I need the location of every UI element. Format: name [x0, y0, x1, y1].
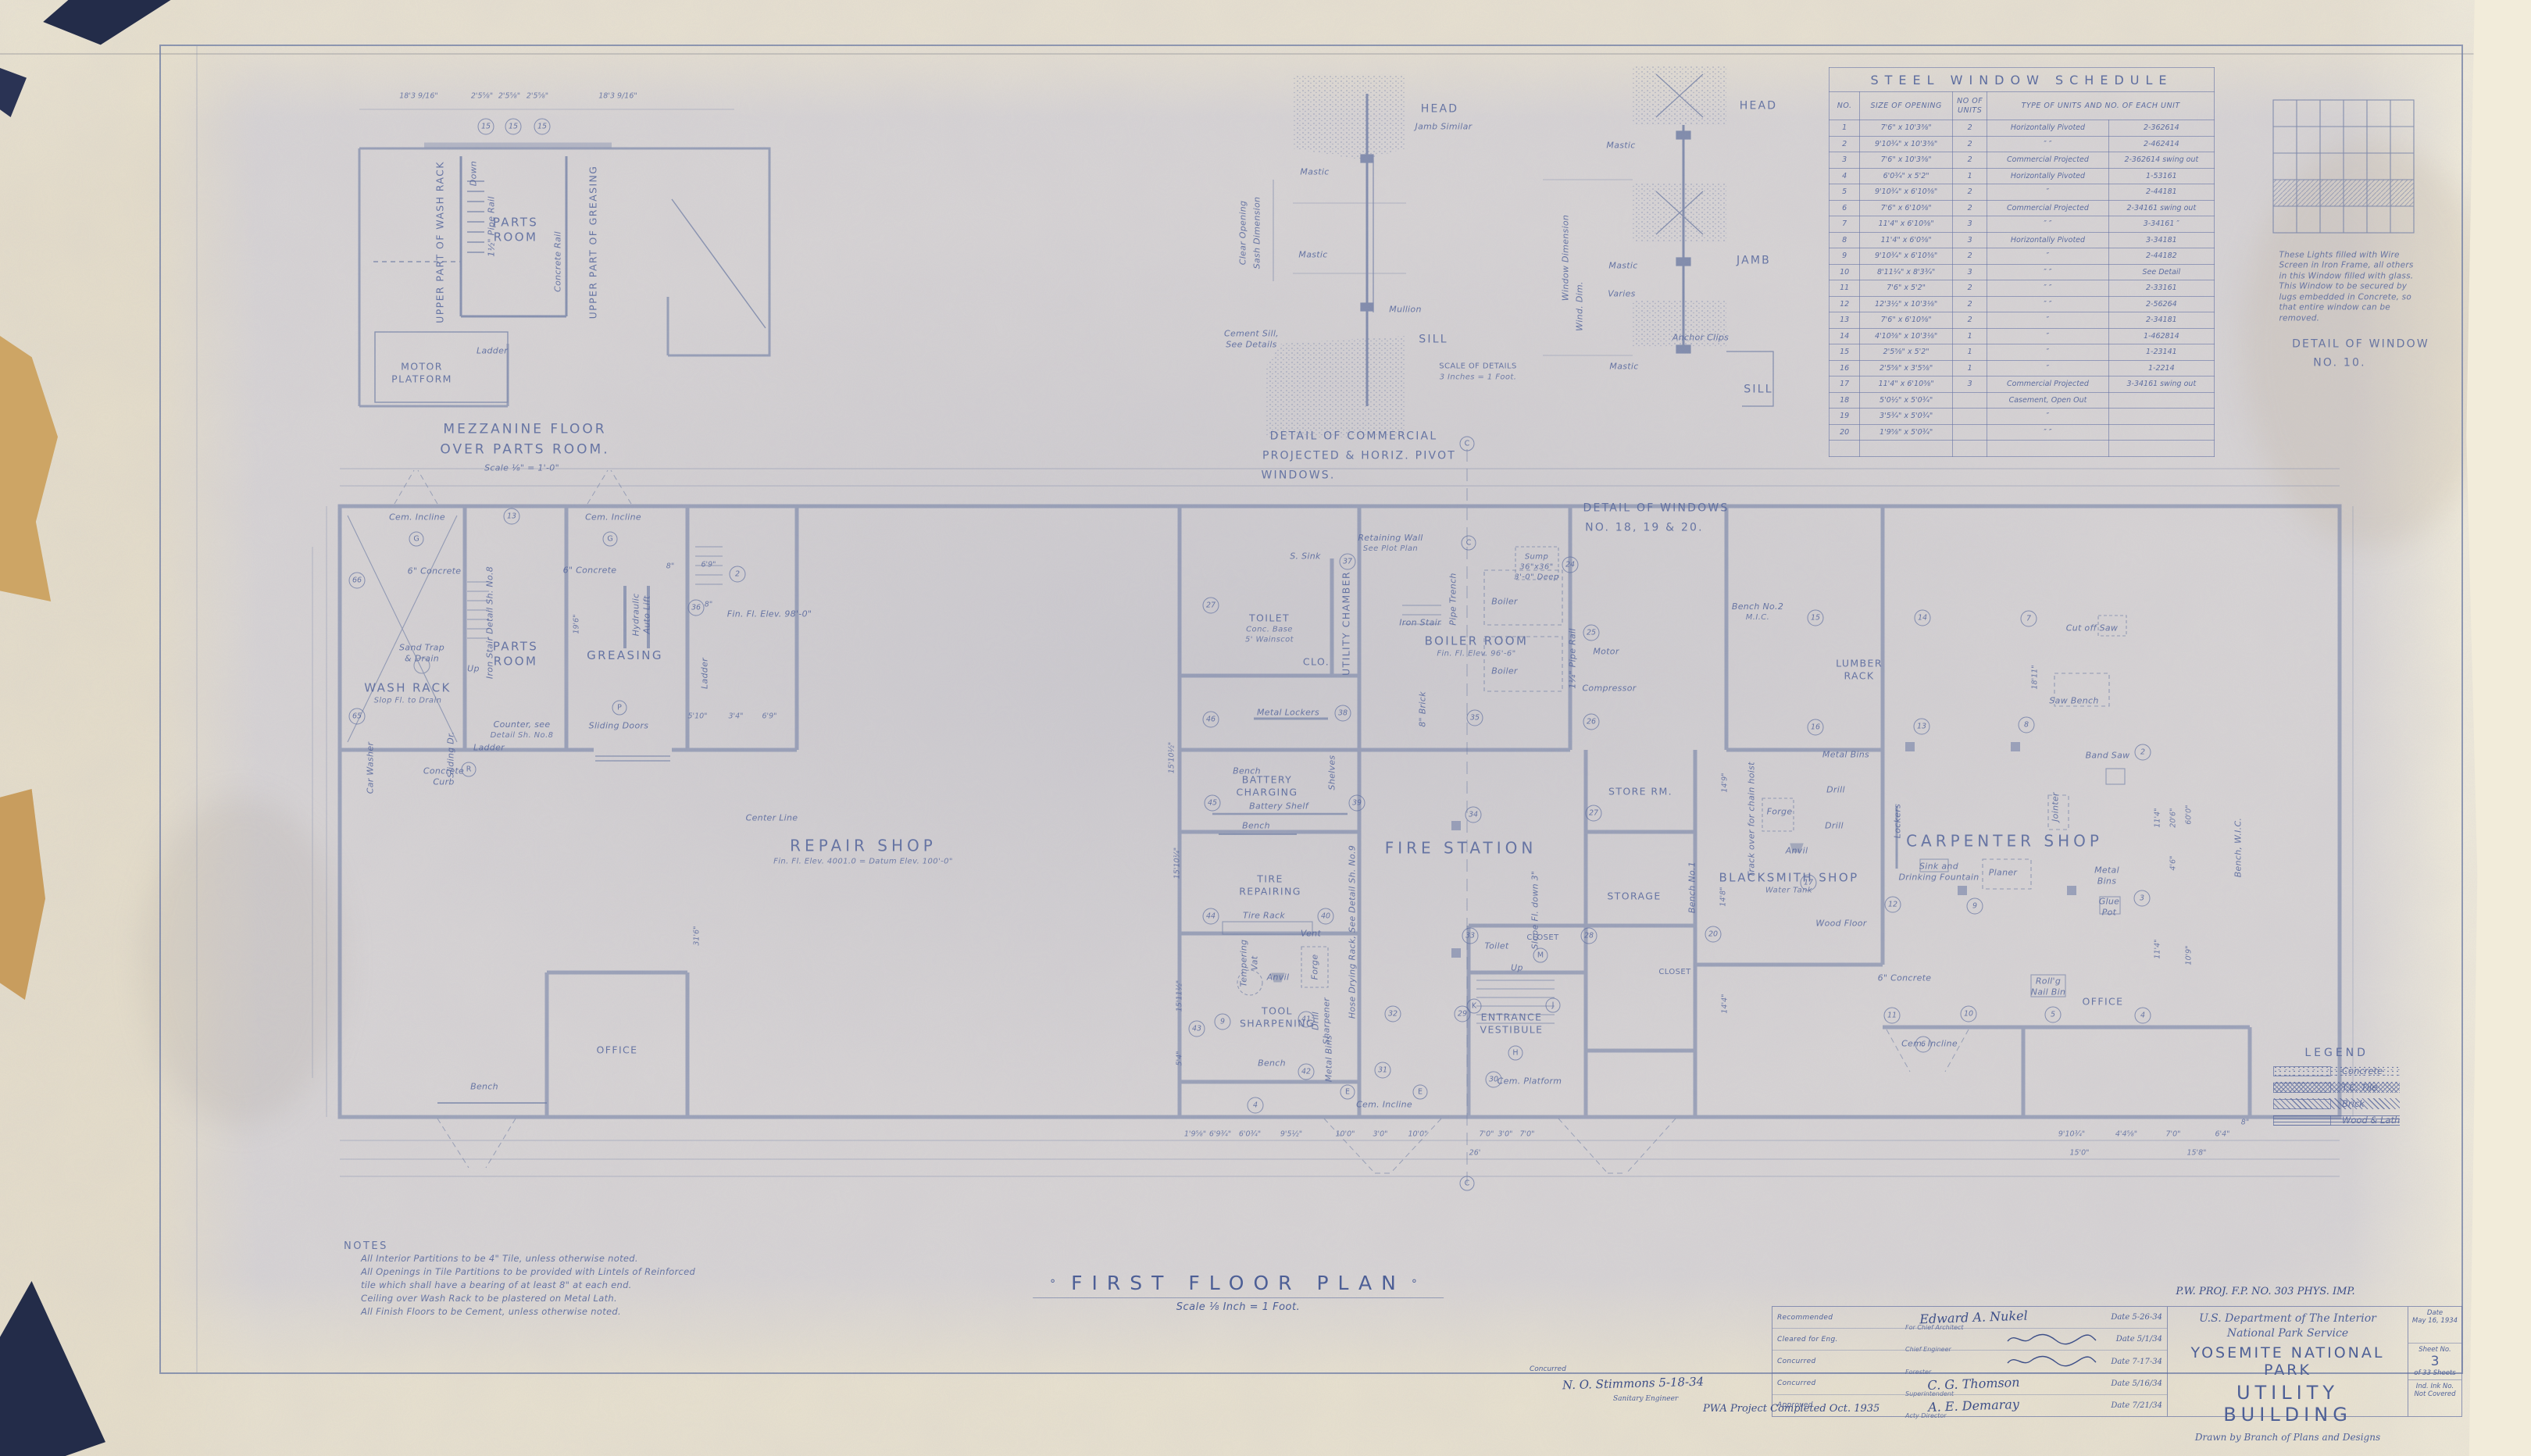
plan-label: Bench	[1233, 765, 1261, 777]
legend-item: Wood & Lath	[2273, 1115, 2400, 1126]
plan-label: Up	[467, 663, 480, 675]
window-number-marker: C	[1462, 536, 1476, 551]
dimension-label: 3'4"	[728, 712, 743, 721]
legend-label: Concrete	[2342, 1065, 2383, 1076]
schedule-cell-unit	[2108, 441, 2214, 457]
schedule-cell-type: Commercial Projected	[1987, 200, 2108, 216]
plan-label: Hydraulic Auto Lift	[630, 594, 653, 637]
sheet-label: Sheet No.	[2408, 1346, 2461, 1354]
plan-title-block: FIRST FLOOR PLAN Scale ⅛ Inch = 1 Foot.	[1033, 1272, 1444, 1313]
plan-label: Band Saw	[2086, 750, 2130, 762]
dimension-label: 14'4"	[1721, 994, 1730, 1013]
window-number-marker: G	[409, 532, 424, 547]
plan-label: Compressor	[1582, 683, 1636, 694]
window-number-marker: 9	[1967, 898, 1983, 915]
schedule-cell-size: 1'9⅝" x 5'0¾"	[1860, 424, 1953, 441]
schedule-cell-no: 7	[1830, 216, 1860, 233]
window-number-marker: 34	[1465, 807, 1482, 823]
plan-label: Vent	[1301, 928, 1321, 940]
plan-label: TOILETConc. Base 5' Wainscot	[1245, 612, 1294, 646]
plan-label: Cem. Incline	[1356, 1099, 1412, 1111]
schedule-row: 17 11'4" x 6'10⅜" 3 Commercial Projected…	[1830, 376, 2215, 393]
schedule-cell-no: 13	[1830, 312, 1860, 329]
schedule-cell-no: 11	[1830, 280, 1860, 297]
plan-label: DETAIL OF COMMERCIAL	[1270, 430, 1438, 445]
legend-item: Concrete	[2273, 1065, 2400, 1076]
schedule-cell-units: 2	[1953, 312, 1987, 329]
schedule-cell-unit: 1-53161	[2108, 168, 2214, 184]
schedule-cell-units: 2	[1953, 200, 1987, 216]
dimension-label: 5'10"	[687, 712, 707, 721]
schedule-col-units: NO OF UNITS	[1953, 92, 1987, 120]
plan-label: Drill	[1825, 820, 1844, 832]
schedule-cell-no: 14	[1830, 328, 1860, 344]
schedule-cell-no: 12	[1830, 296, 1860, 312]
schedule-cell-size: 7'6" x 10'3⅜"	[1860, 152, 1953, 169]
legend-swatch	[2273, 1099, 2331, 1109]
schedule-cell-type: ″	[1987, 328, 2108, 344]
dimension-label: 10'0"	[1408, 1130, 1427, 1139]
plan-label: UPPER PART OF GREASING	[587, 166, 601, 319]
schedule-cell-size: 9'10¾" x 6'10⅜"	[1860, 248, 1953, 265]
schedule-cell-size: 2'5⅝" x 5'2"	[1860, 344, 1953, 361]
schedule-cell-no: 18	[1830, 392, 1860, 409]
dimension-label: 6'0¾"	[1239, 1130, 1261, 1139]
schedule-cell-units: 2	[1953, 296, 1987, 312]
schedule-cell-type: Horizontally Pivoted	[1987, 120, 2108, 137]
notes-title: NOTES	[344, 1240, 695, 1252]
window-number-marker: 14	[1915, 610, 1931, 626]
dimension-label: 15'8"	[2187, 1149, 2206, 1158]
schedule-cell-units: 3	[1953, 376, 1987, 393]
window-number-marker: C	[1460, 437, 1475, 451]
dimension-label: 60'0"	[2185, 805, 2194, 824]
schedule-row: 6 7'6" x 6'10⅜" 2 Commercial Projected 2…	[1830, 200, 2215, 216]
schedule-cell-type: ″ ″	[1987, 216, 2108, 233]
plan-label: Glue Pot	[2099, 896, 2120, 919]
window-number-marker: 36	[688, 600, 705, 616]
schedule-cell-size: 3'5¾" x 5'0¾"	[1860, 409, 1953, 425]
schedule-cell-no: 20	[1830, 424, 1860, 441]
plan-label: BLACKSMITH SHOPWater Tank	[1719, 871, 1858, 897]
plan-label: Bench	[1242, 820, 1270, 832]
schedule-cell-unit: 2-34161 swing out	[2108, 200, 2214, 216]
plan-label: CLOSET	[1658, 968, 1690, 979]
schedule-cell-no: 5	[1830, 184, 1860, 201]
schedule-row: 15 2'5⅝" x 5'2" 1 ″ 1-23141	[1830, 344, 2215, 361]
schedule-cell-type	[1987, 441, 2108, 457]
dimension-label: 3'0"	[1373, 1130, 1387, 1139]
plan-label: Anvil	[1786, 845, 1808, 857]
plan-label: NO. 10.	[2313, 357, 2366, 372]
schedule-cell-unit: 1-2214	[2108, 360, 2214, 376]
window-number-marker: E	[1413, 1085, 1428, 1100]
dimension-label: 31'6"	[693, 926, 701, 945]
schedule-cell-no: 1	[1830, 120, 1860, 137]
signature-date: Date 5-26-34	[2098, 1313, 2162, 1322]
schedule-row: 1 7'6" x 10'3⅜" 2 Horizontally Pivoted 2…	[1830, 120, 2215, 137]
dimension-label: 4'6"	[2169, 855, 2178, 870]
plan-label: Up	[1511, 962, 1523, 974]
schedule-cell-unit	[2108, 409, 2214, 425]
schedule-cell-size: 5'0½" x 5'0¾"	[1860, 392, 1953, 409]
date-label: Date	[2408, 1309, 2461, 1317]
schedule-cell-units: 1	[1953, 168, 1987, 184]
legend-item: T.C. Tile	[2273, 1082, 2400, 1093]
plan-label: 1½" Pipe Rail	[486, 196, 498, 257]
schedule-row: 18 5'0½" x 5'0¾" Casement, Open Out	[1830, 392, 2215, 409]
plan-label: DETAIL OF WINDOW	[2292, 338, 2429, 353]
schedule-cell-type: ″	[1987, 184, 2108, 201]
schedule-cell-unit: 2-362614	[2108, 120, 2214, 137]
plan-label: LUMBER RACK	[1836, 658, 1883, 683]
plan-label: 6" Concrete	[1878, 972, 1932, 984]
signature-date: Date 5/1/34	[2098, 1335, 2162, 1344]
window-number-marker: 2	[730, 566, 746, 583]
plan-label: Mastic	[1608, 260, 1637, 272]
signature-date: Date 7-17-34	[2098, 1358, 2162, 1366]
window-number-marker: 8	[2019, 717, 2035, 733]
legend-items: Concrete T.C. Tile Brick Wood & Lath	[2273, 1065, 2400, 1126]
building-name: UTILITY BUILDING	[2168, 1382, 2408, 1426]
plan-label: FIRE STATION	[1385, 839, 1537, 860]
dimension-label: 7'0"	[1519, 1130, 1534, 1139]
window-number-marker: 15	[478, 119, 494, 135]
window-number-marker: 4	[1248, 1097, 1264, 1114]
date-value: May 16, 1934	[2408, 1317, 2461, 1325]
plan-label: MOTOR PLATFORM	[391, 361, 452, 387]
window-number-marker: 39	[1349, 795, 1365, 812]
plan-label: Bench	[470, 1081, 498, 1093]
dimension-label: 6'9"	[701, 561, 716, 569]
window-number-marker: 66	[349, 573, 366, 589]
steel-window-schedule: STEEL WINDOW SCHEDULE NO. SIZE OF OPENIN…	[1829, 67, 2215, 457]
plan-label: Motor	[1593, 646, 1619, 658]
window-number-marker: 46	[1203, 712, 1219, 728]
schedule-row: 13 7'6" x 6'10⅜" 2 ″ 2-34181	[1830, 312, 2215, 329]
plan-label: HEAD	[1740, 100, 1778, 115]
schedule-cell-no: 8	[1830, 232, 1860, 248]
dimension-label: 18'11"	[2031, 665, 2040, 689]
plan-label: Wood Floor	[1815, 918, 1866, 930]
schedule-cell-type: ″ ″	[1987, 280, 2108, 297]
schedule-row: 10 8'11¼" x 8'3¾" 3 ″ ″ See Detail	[1830, 264, 2215, 280]
plan-label: 6" Concrete	[408, 566, 462, 577]
window-number-marker: 41	[1298, 1012, 1315, 1028]
window-number-marker: 7	[2021, 611, 2037, 627]
window-number-marker: 13	[1914, 719, 1930, 735]
plan-label: Jointer	[2050, 792, 2062, 822]
side-signature-role: Sanitary Engineer	[1613, 1395, 1678, 1403]
schedule-cell-unit: 2-34181	[2108, 312, 2214, 329]
schedule-cell-no: 19	[1830, 409, 1860, 425]
plan-label: Cem. Incline	[389, 512, 445, 523]
plan-label: SCALE OF DETAILS3 Inches = 1 Foot.	[1439, 362, 1517, 384]
plan-label: Cement Sill, See Details	[1224, 328, 1279, 351]
dimension-label: 15'0"	[2069, 1149, 2089, 1158]
window-number-marker: 40	[1318, 908, 1334, 925]
schedule-cell-type: Casement, Open Out	[1987, 392, 2108, 409]
plan-label: Metal Lockers	[1257, 707, 1319, 719]
plan-label: Mullion	[1389, 304, 1421, 316]
schedule-cell-type: ″	[1987, 312, 2108, 329]
schedule-cell-size: 2'5⅝" x 3'5⅝"	[1860, 360, 1953, 376]
window-number-marker: G	[603, 532, 618, 547]
plan-label: MEZZANINE FLOOR	[443, 422, 606, 440]
schedule-cell-no: 16	[1830, 360, 1860, 376]
window-number-marker: 15	[1808, 610, 1824, 626]
schedule-cell-units	[1953, 441, 1987, 457]
plan-label: Toilet	[1484, 940, 1508, 952]
schedule-rows: 1 7'6" x 10'3⅜" 2 Horizontally Pivoted 2…	[1830, 120, 2215, 457]
schedule-cell-unit: 1-462814	[2108, 328, 2214, 344]
plan-label: Bench, W.I.C.	[2233, 818, 2244, 878]
signature-date: Date 5/16/34	[2098, 1379, 2162, 1388]
plan-label: PARTS ROOM	[493, 639, 538, 669]
schedule-cell-units	[1953, 409, 1987, 425]
dimension-label: 26'	[1469, 1149, 1481, 1158]
schedule-cell-type: ″ ″	[1987, 264, 2108, 280]
window-number-marker: 44	[1203, 908, 1219, 925]
schedule-col-size: SIZE OF OPENING	[1860, 92, 1953, 120]
signature-row: Concurred C. G. Thomson Superintendent D…	[1772, 1373, 2167, 1395]
schedule-row: 7 11'4" x 6'10⅜" 3 ″ ″ 3-34161 ″	[1830, 216, 2215, 233]
dimension-label: 7'0"	[1479, 1130, 1494, 1139]
plan-label: Sliding Doors	[589, 720, 649, 732]
schedule-cell-size: 4'10⅜" x 10'3⅛"	[1860, 328, 1953, 344]
plan-label: 1¼" Pipe Rail	[1567, 628, 1579, 689]
plan-label: PARTS ROOM	[493, 215, 538, 245]
dimension-label: 8"	[705, 601, 712, 609]
schedule-cell-size: 11'4" x 6'10⅜"	[1860, 216, 1953, 233]
legend-label: Brick	[2342, 1098, 2365, 1109]
plan-label: STORE RM.	[1608, 786, 1672, 799]
window-number-marker: M	[1533, 948, 1548, 963]
plan-label: OFFICE	[597, 1044, 638, 1058]
schedule-cell-type: Commercial Projected	[1987, 152, 2108, 169]
plan-label: Concrete Curb	[423, 765, 464, 788]
dimension-label: 15'10½"	[1168, 742, 1176, 773]
window-number-marker: 15	[505, 119, 522, 135]
schedule-row: 2 9'10¾" x 10'3⅜" 2 ″ ″ 2-462414	[1830, 136, 2215, 152]
notes-lines: All Interior Partitions to be 4" Tile, u…	[344, 1252, 695, 1319]
legend-swatch	[2273, 1066, 2331, 1076]
window-number-marker: 43	[1189, 1021, 1205, 1037]
window-number-marker: 2	[2135, 744, 2151, 761]
window-number-marker: 15	[534, 119, 551, 135]
schedule-cell-no: 6	[1830, 200, 1860, 216]
dimension-label: 9'5½"	[1280, 1130, 1302, 1139]
window-number-marker: 45	[1205, 795, 1221, 812]
plan-label: 8" Brick	[1417, 691, 1429, 727]
window-number-marker: K	[1467, 999, 1482, 1014]
window-number-marker: 35	[1467, 710, 1483, 726]
plan-label: Mastic	[1300, 166, 1329, 178]
schedule-cell-size	[1860, 441, 1953, 457]
plan-label: Sink and Drinking Fountain	[1898, 861, 1979, 883]
plan-label: Planer	[1989, 867, 2018, 879]
plan-label: Boiler	[1491, 596, 1517, 608]
plan-label: Tire Rack	[1243, 910, 1285, 922]
window-number-marker: 28	[1581, 928, 1597, 944]
schedule-cell-type: Commercial Projected	[1987, 376, 2108, 393]
plan-label: Varies	[1608, 288, 1635, 300]
dimension-label: 11'4"	[2154, 808, 2162, 827]
schedule-cell-size: 12'3½" x 10'3⅛"	[1860, 296, 1953, 312]
title-block: Recommended Edward A. Nukel For Chief Ar…	[1772, 1306, 2462, 1417]
window-number-marker: 31	[1375, 1062, 1391, 1079]
agency-line-2: National Park Service	[2168, 1326, 2408, 1341]
dimension-label: 18'3 9/16"	[598, 92, 637, 101]
signature: A. E. Demaray	[1849, 1394, 2098, 1417]
schedule-cell-type: ″	[1987, 344, 2108, 361]
window-number-marker: E	[1340, 1085, 1355, 1100]
plan-label: OFFICE	[2083, 996, 2124, 1009]
plan-label: SILL	[1419, 334, 1448, 348]
plan-label: These Lights filled with Wire Screen in …	[2279, 250, 2463, 324]
park-name: YOSEMITE NATIONAL PARK	[2168, 1344, 2408, 1379]
schedule-col-type: TYPE OF UNITS AND NO. OF EACH UNIT	[1987, 92, 2215, 120]
signature-scrawl-icon	[2004, 1355, 2098, 1368]
plan-label: Cut off Saw	[2066, 623, 2118, 634]
ink-value: Not Covered	[2408, 1390, 2461, 1398]
plan-label: WASH RACKSlop Fl. to Drain	[364, 681, 452, 707]
plan-label: Wind. Dim.	[1574, 281, 1586, 331]
window-number-marker: 5	[2045, 1007, 2062, 1023]
plan-label: Anvil	[1267, 972, 1290, 983]
dimension-label: 10'9"	[2185, 945, 2194, 965]
plan-label: Mastic	[1606, 140, 1635, 152]
schedule-row: 20 1'9⅝" x 5'0¾" ″ ″	[1830, 424, 2215, 441]
plan-label: Anchor Clips	[1672, 332, 1729, 344]
notes-block: NOTES All Interior Partitions to be 4" T…	[344, 1240, 695, 1319]
schedule-cell-size: 7'6" x 6'10⅜"	[1860, 200, 1953, 216]
schedule-cell-type: Horizontally Pivoted	[1987, 232, 2108, 248]
project-number: P.W. PROJ. F.P. NO. 303 PHYS. IMP.	[2176, 1286, 2354, 1297]
plan-label: JAMB	[1737, 255, 1771, 269]
plan-label: PROJECTED & HORIZ. PIVOT	[1262, 450, 1456, 465]
legend-label: T.C. Tile	[2342, 1082, 2377, 1093]
plan-label: Sump 36"x36" 3'-0" Deep	[1514, 552, 1558, 583]
schedule-row: 14 4'10⅜" x 10'3⅛" 1 ″ 1-462814	[1830, 328, 2215, 344]
dimension-label: 14'9"	[1721, 773, 1730, 792]
schedule-cell-size: 9'10¾" x 6'10⅜"	[1860, 184, 1953, 201]
plan-label: Hose Drying Rack, See Detail Sh. No.9	[1347, 845, 1358, 1019]
schedule-cell-unit: 1-23141	[2108, 344, 2214, 361]
plan-label: Metal Bins	[1822, 749, 1869, 761]
dimension-label: 10'0"	[1335, 1130, 1355, 1139]
blueprint-scan: { "sheet": { "plan_title": "FIRST FLOOR …	[0, 0, 2531, 1456]
schedule-cell-units: 3	[1953, 264, 1987, 280]
window-number-marker: 37	[1340, 554, 1356, 570]
legend-item: Brick	[2273, 1098, 2400, 1109]
legend: LEGEND Concrete T.C. Tile Brick Wood & L…	[2273, 1047, 2400, 1131]
schedule-cell-size: 7'6" x 10'3⅜"	[1860, 120, 1953, 137]
plan-label: Track over for chain hoist	[1746, 762, 1758, 877]
plan-label: Iron Stair	[1399, 617, 1441, 629]
plan-label: Down	[468, 161, 480, 186]
plan-label: Saw Bench	[2049, 695, 2098, 707]
plan-label: Mastic	[1298, 249, 1327, 261]
schedule-cell-unit: 3-34161 swing out	[2108, 376, 2214, 393]
plan-label: Forge	[1767, 806, 1793, 818]
signature: Edward A. Nukel	[1849, 1306, 2098, 1329]
window-number-marker: 13	[504, 509, 520, 525]
signature-scrawl-icon	[2004, 1333, 2098, 1346]
schedule-cell-unit: 2-462414	[2108, 136, 2214, 152]
schedule-cell-unit: See Detail	[2108, 264, 2214, 280]
plan-label: Boiler	[1491, 666, 1517, 677]
schedule-cell-type: Horizontally Pivoted	[1987, 168, 2108, 184]
plan-label: SILL	[1744, 384, 1772, 398]
schedule-cell-type: ″	[1987, 409, 2108, 425]
schedule-row: 9 9'10¾" x 6'10⅜" 2 ″ 2-44182	[1830, 248, 2215, 265]
schedule-cell-units	[1953, 392, 1987, 409]
plan-label: Sand Trap & Drain	[399, 642, 444, 665]
plan-label: S. Sink	[1290, 551, 1320, 562]
plan-label: DETAIL OF WINDOWS	[1583, 502, 1730, 517]
plan-label: Ladder	[473, 742, 505, 754]
schedule-cell-unit: 2-44181	[2108, 184, 2214, 201]
schedule-row: 8 11'4" x 6'0⅜" 3 Horizontally Pivoted 3…	[1830, 232, 2215, 248]
dimension-label: 6'9"	[762, 712, 776, 721]
dimension-label: 2'5⅝"	[527, 92, 548, 101]
plan-label: Tempering Vat	[1238, 940, 1261, 987]
schedule-row: 4 6'0¾" x 5'2" 1 Horizontally Pivoted 1-…	[1830, 168, 2215, 184]
plan-label: Car Washer	[365, 742, 377, 794]
signature-action-label: Recommended	[1777, 1314, 1849, 1322]
schedule-cell-type: ″ ″	[1987, 296, 2108, 312]
dimension-label: 14'8"	[1719, 887, 1728, 906]
plan-label: CARPENTER SHOP	[1906, 832, 2103, 853]
title-block-center: U.S. Department of The Interior National…	[2168, 1307, 2408, 1416]
schedule-cell-no: 9	[1830, 248, 1860, 265]
plan-label: Bench	[1258, 1058, 1286, 1069]
schedule-cell-units: 1	[1953, 328, 1987, 344]
ink-label: Ind. Ink No.	[2408, 1383, 2461, 1390]
legend-swatch	[2273, 1083, 2331, 1093]
schedule-cell-units: 2	[1953, 152, 1987, 169]
plan-label: HEAD	[1421, 103, 1459, 118]
schedule-cell-units: 2	[1953, 184, 1987, 201]
dimension-label: 2'5⅝"	[498, 92, 520, 101]
window-number-marker: 16	[1808, 719, 1824, 736]
plan-label: OVER PARTS ROOM.	[440, 442, 609, 460]
schedule-col-no: NO.	[1830, 92, 1860, 120]
schedule-cell-units: 2	[1953, 136, 1987, 152]
plan-label: Retaining WallSee Plot Plan	[1358, 533, 1423, 555]
legend-swatch	[2273, 1115, 2331, 1126]
window-number-marker: 65	[349, 708, 366, 725]
schedule-row: 16 2'5⅝" x 3'5⅝" 1 ″ 1-2214	[1830, 360, 2215, 376]
side-signature-label: Concurred	[1530, 1365, 1566, 1373]
plan-label: Ladder	[699, 658, 711, 689]
window-number-marker: R	[462, 762, 477, 777]
note-line: All Finish Floors to be Cement, unless o…	[361, 1305, 695, 1319]
schedule-cell-type: ″	[1987, 248, 2108, 265]
schedule-cell-units: 2	[1953, 120, 1987, 137]
dimension-label: 6'4"	[2215, 1130, 2229, 1139]
dimension-label: 18'3 9/16"	[399, 92, 437, 101]
dimension-label: 15'11½"	[1176, 980, 1184, 1012]
pwa-note: PWA Project Completed Oct. 1935	[1703, 1403, 1880, 1415]
dimension-label: 9'10¾"	[2058, 1130, 2085, 1139]
schedule-cell-unit: 3-34181	[2108, 232, 2214, 248]
window-number-marker: 12	[1885, 897, 1901, 913]
dimension-label: 4'4⅝"	[2115, 1130, 2137, 1139]
plan-label: WINDOWS.	[1261, 469, 1335, 484]
signature-date: Date 7/21/34	[2098, 1401, 2162, 1410]
